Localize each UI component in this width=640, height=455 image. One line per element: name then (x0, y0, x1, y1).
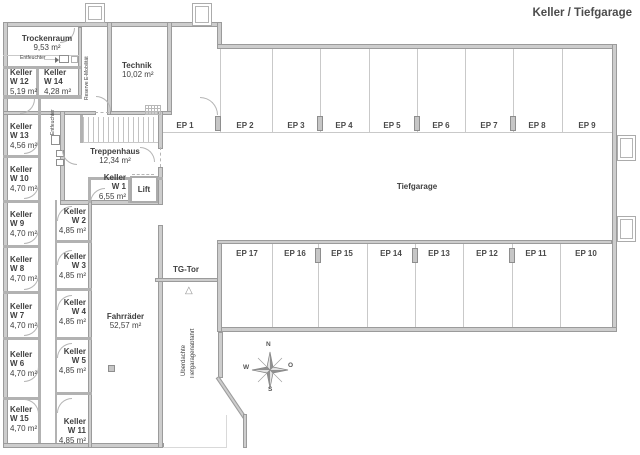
parking-space-label: EP 6 (421, 121, 461, 130)
room-area: 4,85 m² (58, 271, 86, 280)
room-name: Keller (10, 350, 40, 359)
room-area: 4,70 m² (10, 229, 40, 238)
stall-divider (562, 49, 563, 132)
room-name: Keller (10, 68, 40, 77)
staircase (83, 117, 158, 142)
column (317, 116, 323, 131)
column (315, 248, 321, 263)
room-name: Keller (10, 302, 40, 311)
light-shaft (617, 135, 636, 161)
parking-space-label: EP 17 (227, 249, 267, 258)
room-label-keller-w5: Keller W 5 4,85 m² (58, 347, 86, 375)
stall-divider (272, 244, 273, 327)
parking-space-label: EP 1 (165, 121, 205, 130)
room-area: 4,70 m² (10, 274, 40, 283)
light-shaft (192, 3, 212, 26)
room-name: Keller (10, 255, 40, 264)
room-label-fahrraeder: Fahrräder 52,57 m² (94, 312, 157, 331)
room-label-keller-w15: Keller W 15 4,70 m² (10, 405, 40, 433)
wall-segment (3, 291, 41, 294)
room-area: 10,02 m² (122, 70, 164, 79)
entfeuchter-label: Entfeuchter (20, 55, 46, 61)
ramp-label-line2: Tiefgaragenabfahrt (190, 297, 196, 379)
room-name: Keller (10, 210, 40, 219)
room-label-keller-w9: Keller W 9 4,70 m² (10, 210, 40, 238)
room-number: W 11 (58, 426, 86, 435)
room-area: 4,85 m² (58, 436, 86, 445)
entfeuchter-vertical-label: Entfeuchter (50, 103, 56, 135)
room-area: 52,57 m² (94, 321, 157, 330)
parking-space-label: EP 15 (322, 249, 362, 258)
wall-segment (55, 288, 92, 291)
room-name: Keller (58, 298, 86, 307)
room-area: 12,34 m² (87, 156, 143, 165)
room-label-keller-w7: Keller W 7 4,70 m² (10, 302, 40, 330)
room-label-keller-w6: Keller W 6 4,70 m² (10, 350, 40, 378)
light-shaft (85, 3, 105, 23)
room-name: Lift (131, 185, 157, 194)
room-area: 4,70 m² (10, 321, 40, 330)
parking-space-label: EP 4 (324, 121, 364, 130)
room-number: W 8 (10, 264, 40, 273)
dehumidifier-icon (71, 56, 78, 63)
wall-segment (158, 111, 163, 149)
room-area: 9,53 m² (17, 43, 77, 52)
room-name: Fahrräder (94, 312, 157, 321)
wall-segment (217, 327, 617, 332)
wall-segment (158, 167, 163, 205)
stair-edge-line (83, 142, 158, 143)
door-swing-arc (57, 398, 72, 413)
compass-south-label: S (268, 386, 272, 393)
meter-box-icon (56, 159, 64, 166)
room-label-keller-w1: Keller W 1 6,55 m² (94, 173, 126, 201)
parking-space-label: EP 16 (275, 249, 315, 258)
room-label-tiefgarage: Tiefgarage (384, 182, 450, 191)
floor-plan: Keller / Tiefgarage Trockenraum 9,53 m² … (0, 0, 640, 455)
room-label-keller-w8: Keller W 8 4,70 m² (10, 255, 40, 283)
door-opening (160, 147, 161, 167)
wall-segment (167, 22, 172, 115)
floor-drain-icon (108, 365, 115, 372)
room-label-keller-w3: Keller W 3 4,85 m² (58, 252, 86, 280)
room-area: 4,56 m² (10, 141, 40, 150)
room-name: Keller (58, 347, 86, 356)
column (414, 116, 420, 131)
room-number: W 5 (58, 356, 86, 365)
ramp-label-line1: Überdachte (181, 300, 187, 376)
parking-space-label: EP 12 (467, 249, 507, 258)
room-number: W 6 (10, 359, 40, 368)
stall-divider (465, 49, 466, 132)
room-area: 6,55 m² (94, 192, 126, 201)
room-label-lift: Lift (131, 185, 157, 194)
ramp-outline (226, 415, 227, 448)
wall-segment (55, 392, 92, 395)
dehumidifier-icon (59, 55, 69, 63)
room-label-technik: Technik 10,02 m² (122, 61, 164, 80)
wall-segment (3, 200, 41, 203)
parking-space-label: EP 5 (372, 121, 412, 130)
room-number: W 12 (10, 77, 40, 86)
wall-segment (243, 414, 247, 448)
room-label-keller-w10: Keller W 10 4,70 m² (10, 165, 40, 193)
compass-west-label: W (243, 364, 249, 371)
ramp-direction-triangle-icon: △ (185, 286, 193, 296)
room-name: Keller (44, 68, 74, 77)
room-number: W 1 (94, 182, 126, 191)
ramp-outline (163, 447, 227, 448)
parking-space-label: EP 13 (419, 249, 459, 258)
room-area: 5,19 m² (10, 87, 40, 96)
stall-divider (367, 244, 368, 327)
wall-segment (158, 225, 163, 448)
light-shaft (617, 216, 636, 242)
wall-segment (217, 240, 222, 332)
parking-space-label: EP 14 (371, 249, 411, 258)
room-name: Treppenhaus (87, 147, 143, 156)
room-label-keller-w14: Keller W 14 4,28 m² (44, 68, 74, 96)
room-name: Keller (58, 207, 86, 216)
parking-space-label: EP 10 (566, 249, 606, 258)
wall-segment (612, 44, 617, 332)
dehumidifier-icon (51, 135, 60, 145)
wall-segment (55, 337, 92, 340)
wall-segment (155, 278, 218, 282)
column (412, 248, 418, 263)
room-number: W 9 (10, 219, 40, 228)
room-name: Technik (122, 61, 164, 70)
wall-segment (3, 22, 8, 448)
room-name: Keller (10, 405, 40, 414)
wall-segment (78, 27, 82, 99)
room-name: Trockenraum (17, 34, 77, 43)
wall-segment (88, 200, 92, 448)
page-title: Keller / Tiefgarage (500, 7, 632, 19)
room-area: 4,28 m² (44, 87, 74, 96)
room-name: Keller (10, 165, 40, 174)
wall-segment (3, 22, 222, 27)
room-name: Keller (58, 252, 86, 261)
column (215, 116, 221, 131)
wall-segment (55, 240, 92, 243)
room-label-treppenhaus: Treppenhaus 12,34 m² (87, 147, 143, 166)
wall-segment (218, 332, 223, 378)
wall-segment (3, 155, 41, 158)
room-name: Keller (94, 173, 126, 182)
stall-divider (463, 244, 464, 327)
compass-rose-icon (250, 350, 290, 390)
room-area: 4,85 m² (58, 317, 86, 326)
room-name: Tiefgarage (384, 182, 450, 191)
room-name: Keller (58, 417, 86, 426)
room-label-keller-w11: Keller W 11 4,85 m² (58, 417, 86, 445)
door-opening (95, 112, 109, 113)
door-opening (132, 174, 154, 175)
shaft-hatch-icon (145, 105, 161, 115)
room-number: W 7 (10, 311, 40, 320)
room-label-keller-w4: Keller W 4 4,85 m² (58, 298, 86, 326)
parking-space-label: EP 7 (469, 121, 509, 130)
column (510, 116, 516, 131)
stall-divider (560, 244, 561, 327)
room-label-keller-w13: Keller W 13 4,56 m² (10, 122, 40, 150)
room-number: W 14 (44, 77, 74, 86)
tg-tor-label: TG-Tor (167, 265, 205, 274)
room-area: 4,70 m² (10, 184, 40, 193)
room-number: W 3 (58, 261, 86, 270)
column (509, 248, 515, 263)
parking-space-label: EP 9 (567, 121, 607, 130)
room-number: W 10 (10, 174, 40, 183)
compass-east-label: O (288, 362, 293, 369)
parking-space-label: EP 8 (517, 121, 557, 130)
room-number: W 15 (10, 414, 40, 423)
room-number: W 4 (58, 307, 86, 316)
room-label-keller-w12: Keller W 12 5,19 m² (10, 68, 40, 96)
room-area: 4,85 m² (58, 226, 86, 235)
room-area: 4,70 m² (10, 369, 40, 378)
stall-divider (272, 49, 273, 132)
wall-segment (55, 200, 57, 443)
room-number: W 13 (10, 131, 40, 140)
parking-space-label: EP 3 (276, 121, 316, 130)
ramp-wall-diagonal (216, 376, 247, 419)
parking-space-label: EP 2 (225, 121, 265, 130)
wall-segment (3, 397, 41, 400)
stall-front-line (163, 132, 612, 133)
room-label-trockenraum: Trockenraum 9,53 m² (17, 34, 77, 53)
room-label-keller-w2: Keller W 2 4,85 m² (58, 207, 86, 235)
room-area: 4,85 m² (58, 366, 86, 375)
room-number: W 2 (58, 216, 86, 225)
room-area: 4,70 m² (10, 424, 40, 433)
parking-space-label: EP 11 (516, 249, 556, 258)
door-swing-arc (200, 97, 218, 115)
wall-segment (3, 337, 41, 340)
stall-divider (369, 49, 370, 132)
wall-segment (3, 245, 41, 248)
reserve-emobility-label: Reserve E-Mobilität (84, 56, 90, 100)
compass-north-label: N (266, 341, 271, 348)
room-name: Keller (10, 122, 40, 131)
